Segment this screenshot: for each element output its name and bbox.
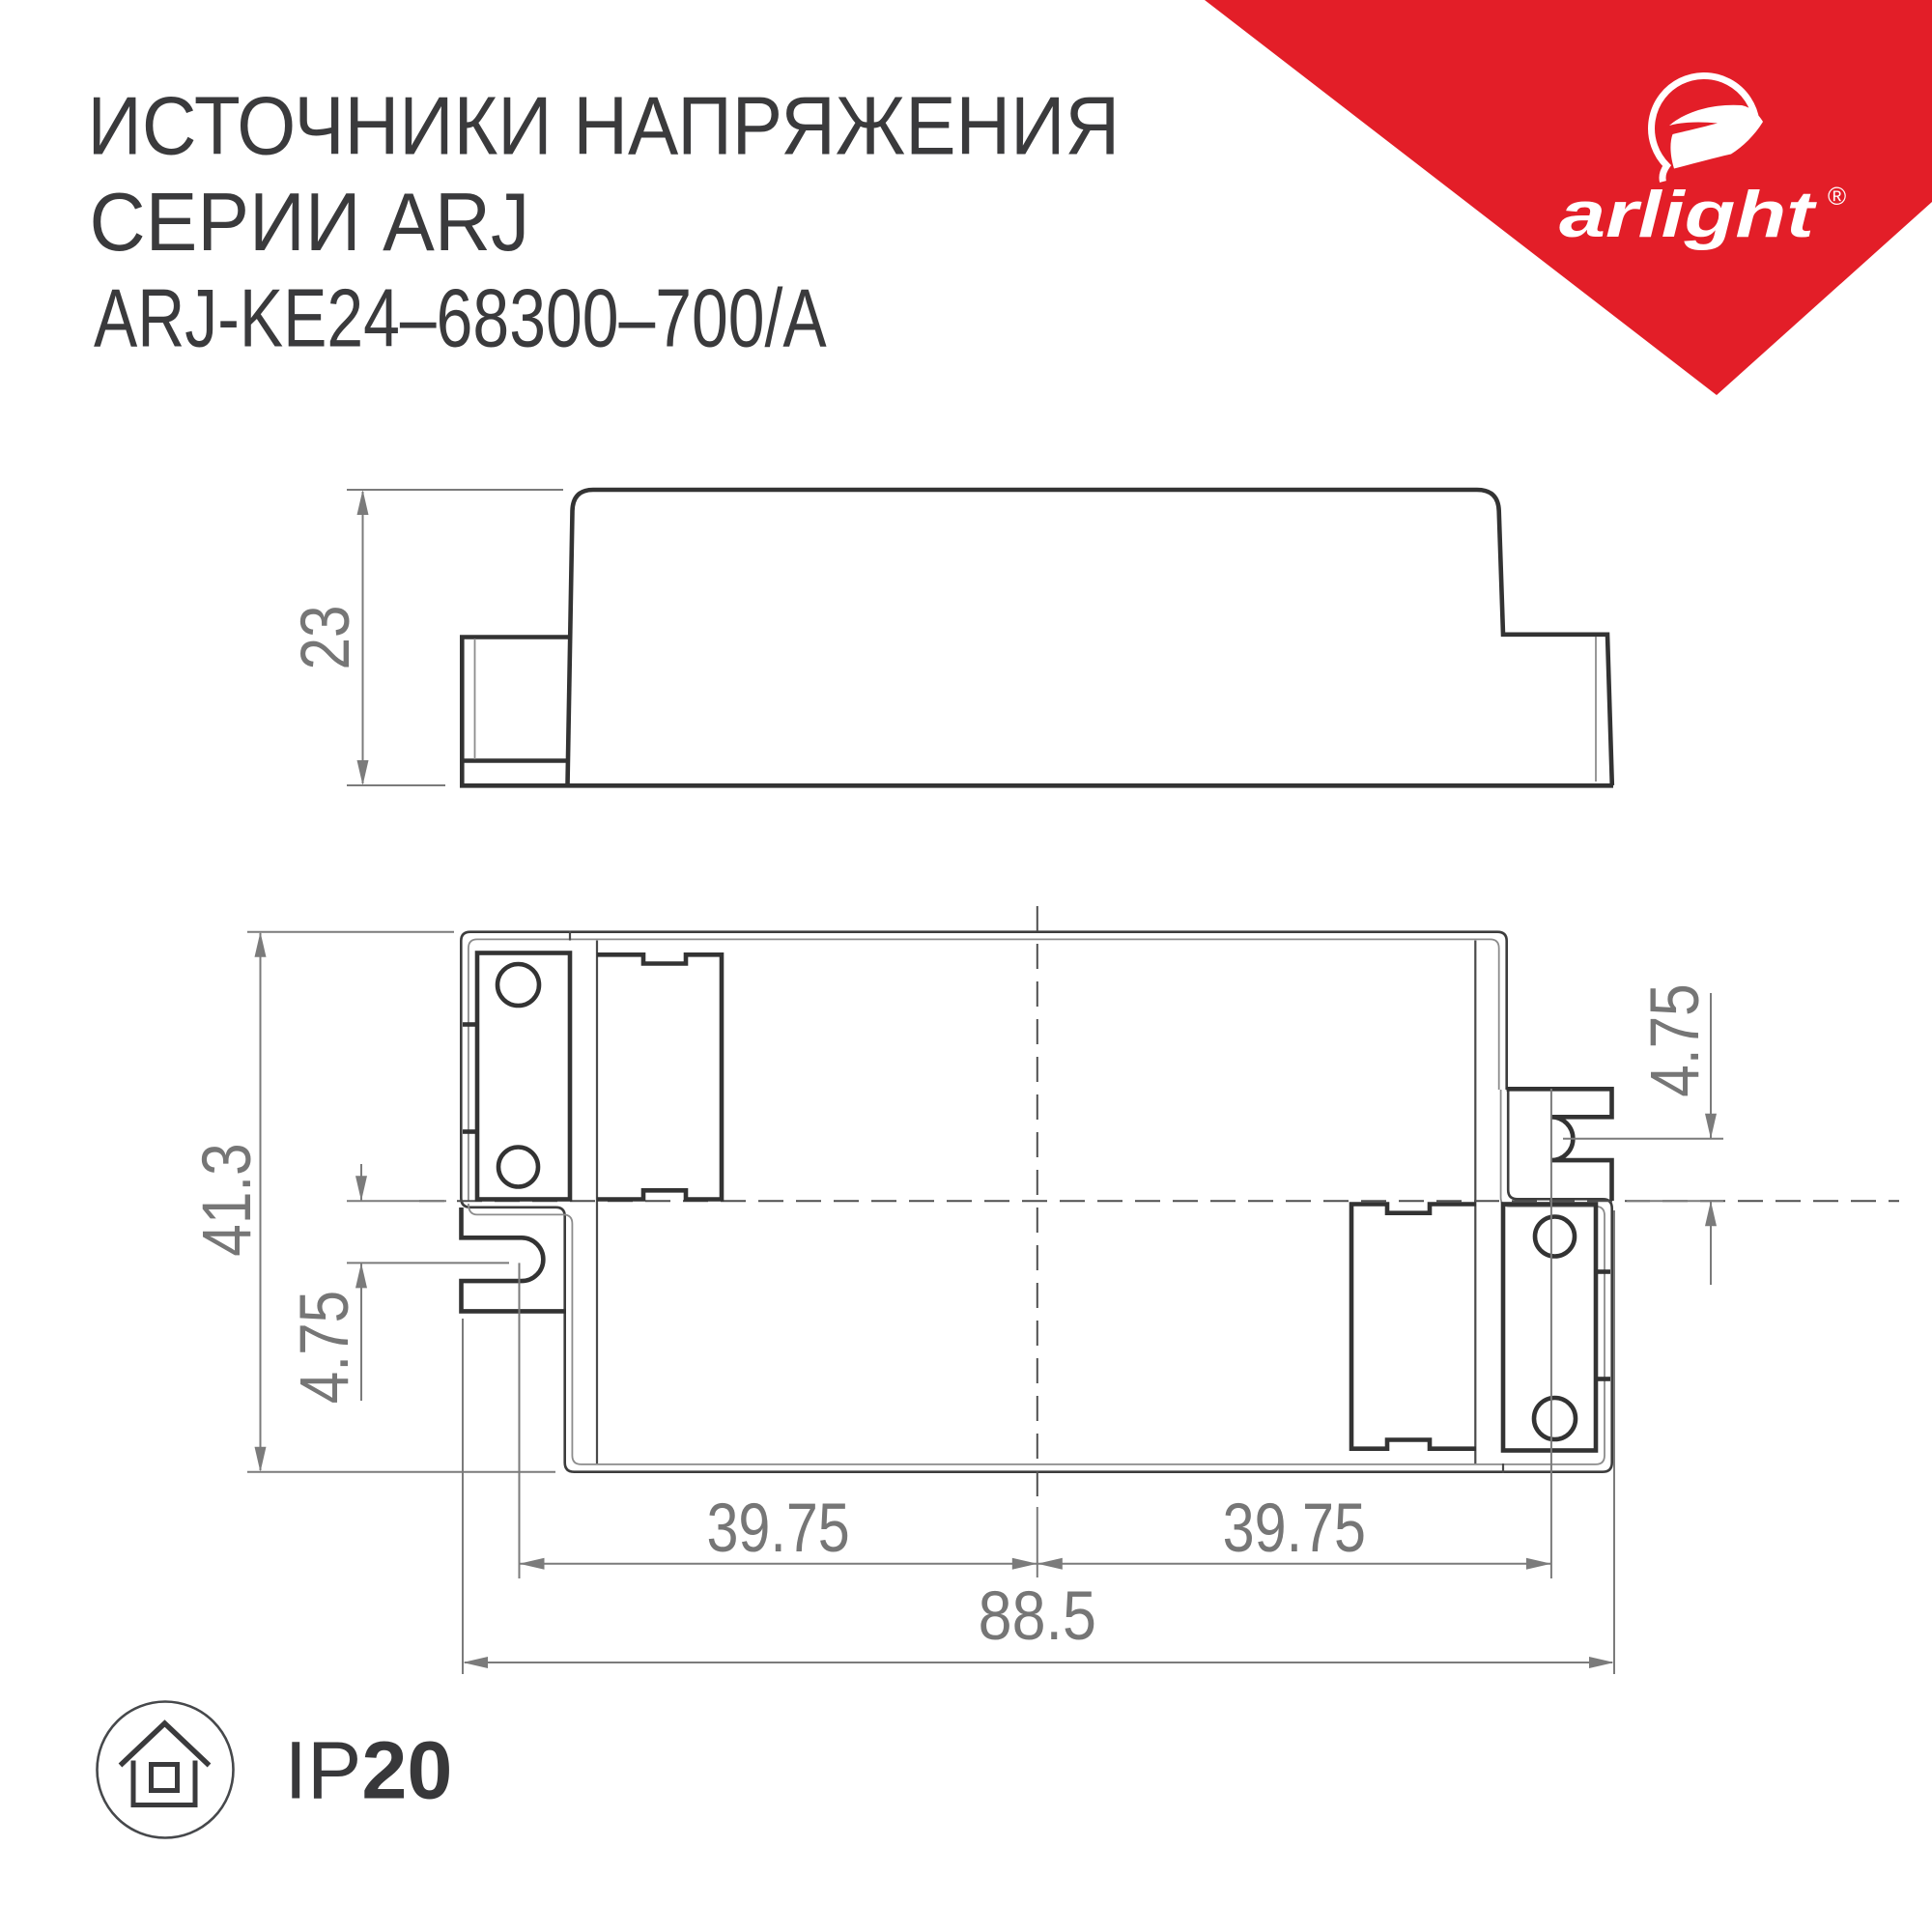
svg-text:arlight: arlight xyxy=(1559,179,1817,251)
svg-text:ИСТОЧНИКИ НАПРЯЖЕНИЯ: ИСТОЧНИКИ НАПРЯЖЕНИЯ xyxy=(88,80,1121,172)
svg-text:39.75: 39.75 xyxy=(1223,1490,1366,1566)
svg-text:®: ® xyxy=(1828,182,1846,211)
svg-text:ARJ-KE24–68300–700/A: ARJ-KE24–68300–700/A xyxy=(94,272,827,364)
svg-text:23: 23 xyxy=(286,605,363,669)
svg-text:41.3: 41.3 xyxy=(187,1143,265,1256)
svg-text:4.75: 4.75 xyxy=(1635,983,1713,1096)
svg-text:СЕРИИ ARJ: СЕРИИ ARJ xyxy=(90,176,530,269)
svg-text:88.5: 88.5 xyxy=(979,1577,1096,1654)
svg-text:IP20: IP20 xyxy=(285,1725,453,1816)
svg-text:39.75: 39.75 xyxy=(706,1490,849,1566)
svg-text:4.75: 4.75 xyxy=(285,1291,362,1404)
